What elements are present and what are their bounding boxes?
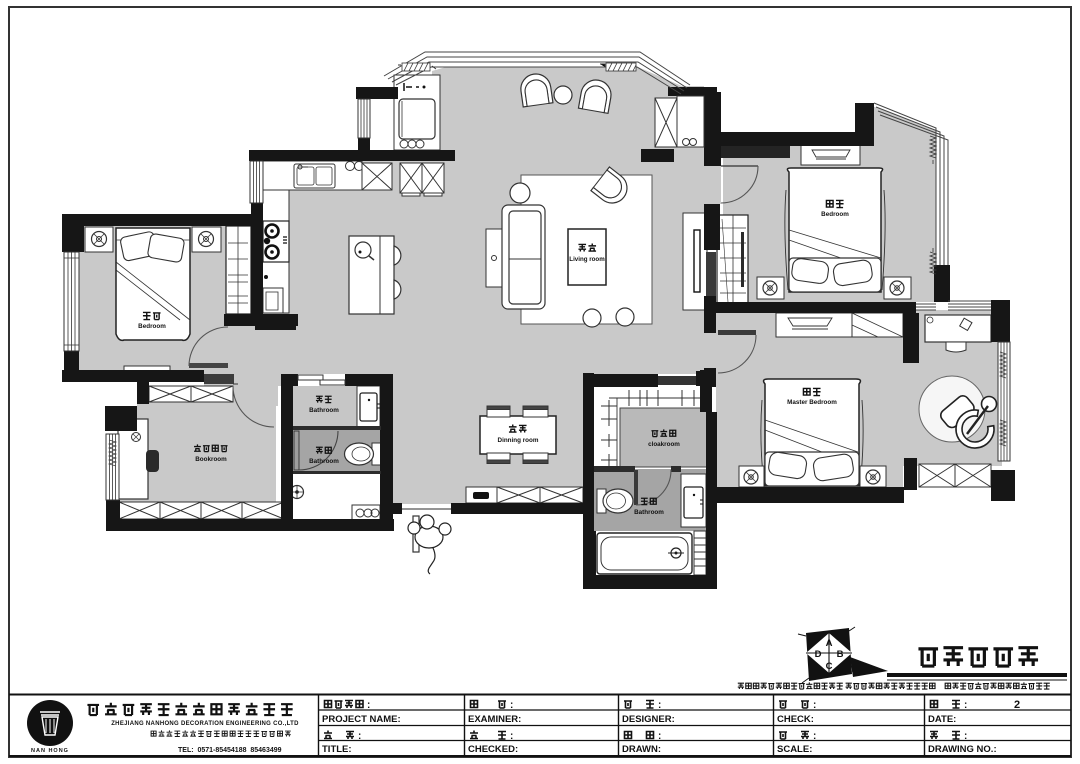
svg-text:D: D <box>815 649 822 660</box>
svg-text:SCALE:: SCALE: <box>777 744 812 755</box>
svg-text:Bathroom: Bathroom <box>309 407 339 414</box>
svg-text:cloakroom: cloakroom <box>648 441 680 448</box>
svg-text:A: A <box>826 638 833 649</box>
svg-text:DATE:: DATE: <box>928 714 956 725</box>
svg-text:Dinning room: Dinning room <box>498 437 539 444</box>
svg-text:PROJECT NAME:: PROJECT NAME: <box>322 714 401 725</box>
svg-text:DESIGNER:: DESIGNER: <box>622 714 675 725</box>
svg-text:CHECKED:: CHECKED: <box>468 744 518 755</box>
svg-text::: : <box>510 731 513 742</box>
svg-text:2: 2 <box>1014 699 1020 711</box>
svg-text:TEL: 0571-85454188 85463499: TEL: 0571-85454188 85463499 <box>178 747 282 754</box>
svg-text:NAN HONG: NAN HONG <box>31 748 69 754</box>
svg-text::: : <box>358 731 361 742</box>
svg-text:CHECK:: CHECK: <box>777 714 814 725</box>
svg-text:B: B <box>837 649 844 660</box>
svg-text:Bathroom: Bathroom <box>634 509 664 516</box>
svg-text:Master Bedroom: Master Bedroom <box>787 399 837 406</box>
svg-text:C: C <box>826 661 833 672</box>
svg-text::: : <box>367 700 370 711</box>
svg-text::: : <box>964 731 967 742</box>
svg-text::: : <box>813 731 816 742</box>
svg-text::: : <box>964 700 967 711</box>
svg-text:DRAWING NO.:: DRAWING NO.: <box>928 744 997 755</box>
svg-text:DRAWN:: DRAWN: <box>622 744 661 755</box>
svg-text::: : <box>510 700 513 711</box>
svg-text:ZHEJIANG NANHONG DECORATION EN: ZHEJIANG NANHONG DECORATION ENGINEERING … <box>111 721 299 727</box>
svg-text::: : <box>658 700 661 711</box>
svg-text:Living room: Living room <box>569 256 605 263</box>
svg-text:Bookroom: Bookroom <box>195 456 227 463</box>
svg-text:EXAMINER:: EXAMINER: <box>468 714 521 725</box>
svg-text:Bedroom: Bedroom <box>821 211 849 218</box>
svg-text:Bedroom: Bedroom <box>138 323 166 330</box>
svg-text::: : <box>658 731 661 742</box>
svg-text::: : <box>813 700 816 711</box>
svg-text:TITLE:: TITLE: <box>322 744 352 755</box>
svg-text:Bathroom: Bathroom <box>309 458 339 465</box>
